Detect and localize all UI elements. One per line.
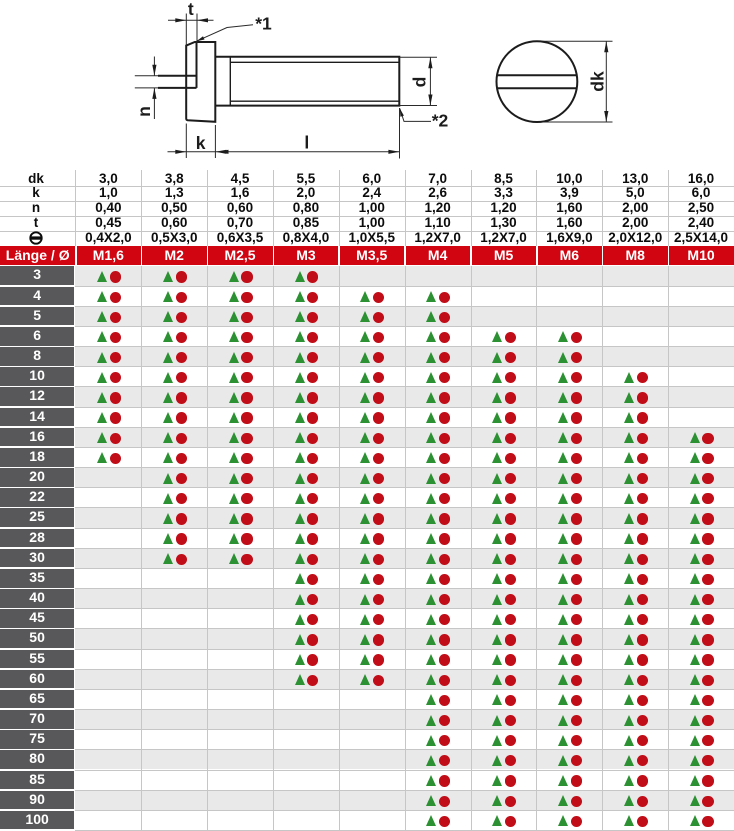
svg-text:n: n bbox=[134, 106, 154, 117]
svg-text:*1: *1 bbox=[255, 14, 272, 34]
svg-text:d: d bbox=[410, 77, 430, 88]
svg-text:k: k bbox=[196, 133, 206, 153]
svg-text:l: l bbox=[304, 133, 309, 153]
svg-text:t: t bbox=[188, 0, 194, 19]
svg-text:*2: *2 bbox=[432, 110, 449, 130]
svg-text:dk: dk bbox=[588, 71, 608, 92]
